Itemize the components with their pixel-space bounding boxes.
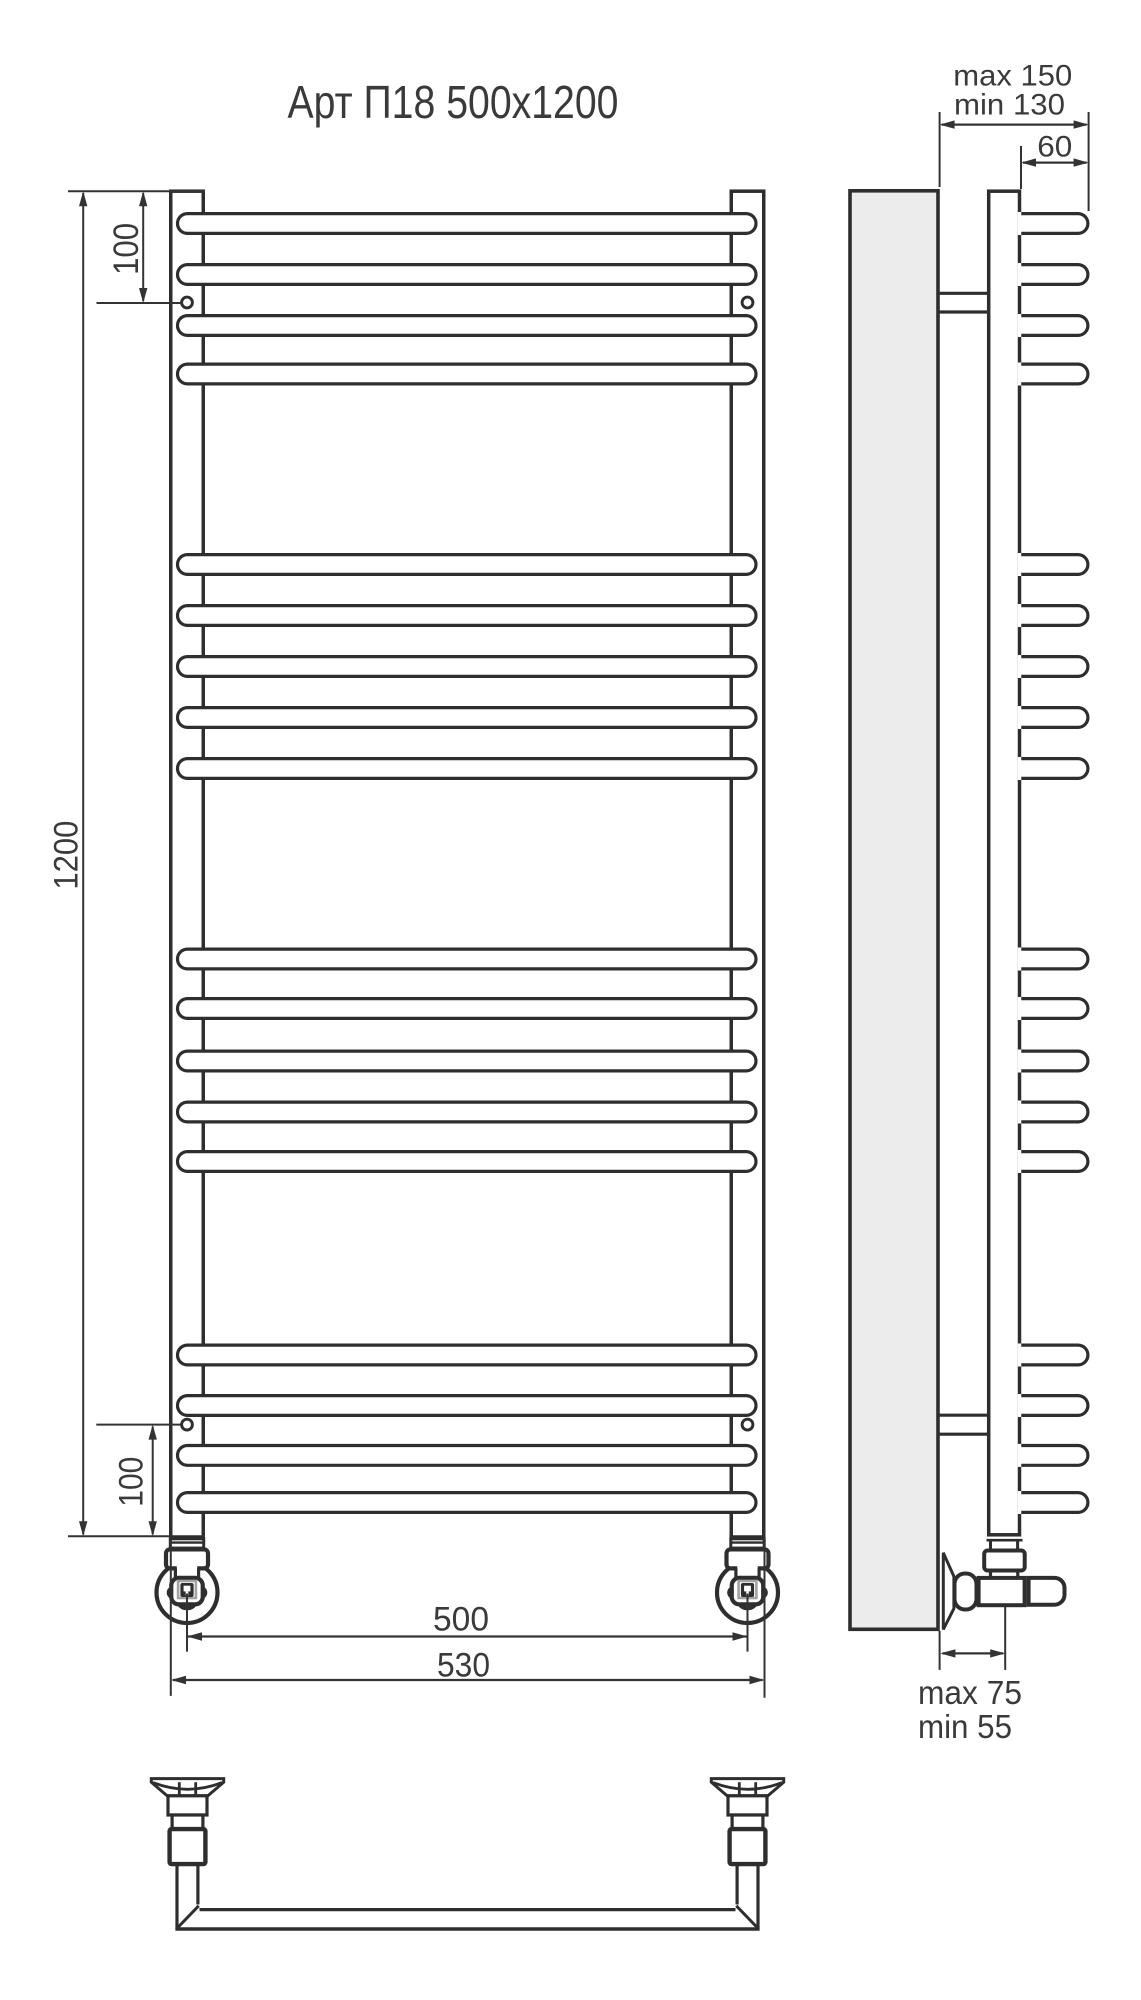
- svg-text:60: 60: [1037, 130, 1072, 163]
- svg-text:Арт П18 500x1200: Арт П18 500x1200: [288, 76, 619, 128]
- svg-text:max 75: max 75: [918, 1674, 1022, 1711]
- svg-text:530: 530: [437, 1647, 490, 1685]
- svg-text:min 55: min 55: [918, 1708, 1012, 1745]
- svg-text:max 150: max 150: [953, 59, 1072, 92]
- svg-text:100: 100: [113, 1457, 151, 1507]
- svg-text:1200: 1200: [47, 821, 85, 890]
- svg-text:500: 500: [433, 1601, 489, 1639]
- svg-text:100: 100: [107, 223, 146, 275]
- svg-text:min 130: min 130: [954, 89, 1065, 122]
